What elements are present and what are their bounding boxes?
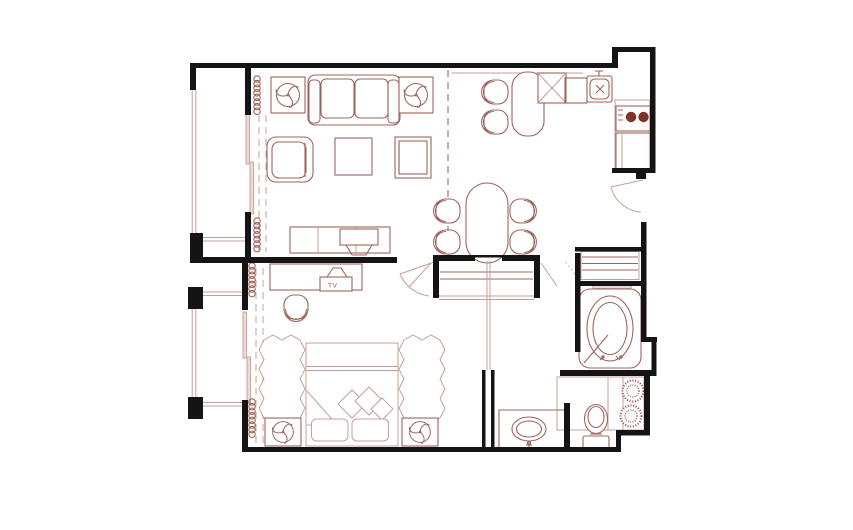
dining-chair: [434, 230, 460, 254]
pocket-door-jamb: [482, 370, 486, 447]
side-table-right: [399, 77, 433, 113]
dining-chair: [510, 199, 536, 223]
tv: [340, 229, 378, 245]
sliding-door-panel: [250, 162, 254, 214]
vanity: [499, 410, 564, 448]
corner-cabinet: [538, 73, 566, 103]
curtain-coil: [249, 399, 255, 438]
accent-chair: [395, 137, 431, 178]
curtain-coil: [254, 76, 260, 115]
pillow: [352, 419, 389, 441]
plant: [623, 381, 644, 402]
wall-divider: [190, 257, 397, 263]
kitchen-sink: [587, 71, 612, 102]
desk-chair: [284, 295, 308, 321]
nightstand-left: [265, 418, 301, 446]
vanity-sink: [512, 417, 546, 448]
dining-chair: [434, 199, 460, 223]
rug-left: [259, 335, 305, 423]
rug-right: [399, 335, 445, 423]
wall-east-kitchen: [650, 47, 656, 173]
bedroom: TV: [259, 264, 445, 446]
plant: [621, 406, 642, 427]
balcony-post: [188, 287, 203, 309]
entry-door: [611, 180, 643, 187]
sliding-door-panel: [246, 112, 250, 164]
water-closet: [557, 377, 644, 448]
bar-stool: [482, 110, 508, 134]
armchair: [267, 137, 313, 182]
pocket-door-jamb: [491, 370, 495, 447]
bedroom-door-swing: [400, 274, 429, 296]
wall-north: [190, 63, 614, 68]
nightstand-right: [402, 418, 438, 446]
floor-plan-drawing: TV: [0, 0, 853, 530]
dining-chair: [510, 230, 536, 254]
bathtub: [579, 289, 641, 368]
living-room: [267, 70, 448, 255]
floor-plan-canvas: TV: [0, 0, 853, 530]
curtain-coil: [249, 263, 255, 297]
balcony-post: [188, 397, 203, 419]
bedroom-door: [400, 262, 434, 274]
tv-label: TV: [327, 282, 337, 290]
desk: TV: [270, 264, 362, 291]
bed: [306, 343, 398, 446]
coffee-table: [335, 138, 372, 175]
entry-door-swing: [611, 187, 641, 212]
bar-stool: [482, 80, 508, 104]
pillow: [312, 419, 349, 441]
dining-table: [466, 183, 508, 263]
sofa: [308, 75, 400, 125]
privacy-screen: [608, 377, 623, 430]
tv-console: [290, 227, 390, 255]
bathroom: [579, 252, 641, 369]
refrigerator: [616, 133, 650, 172]
stove: [616, 106, 650, 131]
toilet: [583, 405, 609, 449]
sliding-door-panel: [247, 357, 251, 403]
side-table-left: [271, 77, 305, 113]
linen-closet: [581, 252, 639, 280]
living-balcony: [192, 76, 266, 252]
curtain-coil: [254, 218, 260, 252]
sliding-door-panel: [243, 312, 247, 358]
dining-area: [434, 183, 537, 263]
entry: [611, 180, 643, 212]
kitchen: [452, 71, 650, 172]
dishwasher: [565, 78, 587, 103]
